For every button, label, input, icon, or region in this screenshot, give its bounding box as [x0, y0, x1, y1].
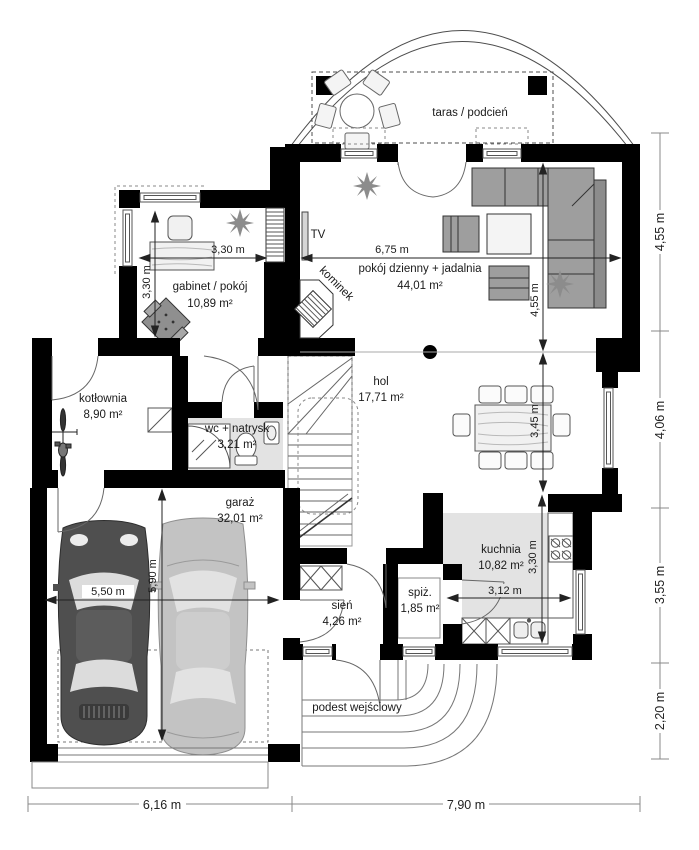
kitchen-counter-right [548, 513, 573, 618]
label-living: pokój dzienny + jadalnia [358, 263, 482, 275]
dim-hol-h: 3,45 m [529, 404, 541, 438]
terrace-chair [345, 133, 369, 149]
hall-storage [300, 566, 440, 638]
label-garaz: garaż [226, 497, 255, 509]
office-chair [168, 216, 192, 240]
tv-set [302, 212, 308, 260]
door-arc [222, 366, 254, 402]
dim-right-2: 3,55 m [653, 566, 667, 604]
label-kotlownia-area: 8,90 m² [84, 409, 123, 421]
window [303, 647, 332, 656]
door-arc [204, 356, 258, 410]
label-taras: taras / podcień [432, 107, 507, 119]
label-gabinet-area: 10,89 m² [187, 298, 233, 310]
dim-living-h: 4,55 m [529, 283, 541, 317]
kitchen-cabinet-x [462, 618, 510, 644]
label-wc-area: 3,21 m² [218, 439, 257, 451]
door-arc [336, 660, 380, 706]
window [341, 149, 377, 158]
label-wc: wc + natrysk [204, 423, 269, 435]
dim-kuchnia-h: 3,30 m [527, 540, 539, 574]
label-hol: hol [373, 376, 388, 388]
terrace-pillar [528, 76, 547, 95]
label-kuchnia: kuchnia [481, 544, 521, 556]
dim-living-w: 6,75 m [375, 244, 409, 256]
label-spiz: spiż. [408, 587, 432, 599]
terrace-table [340, 94, 374, 128]
desk [150, 242, 214, 270]
seat [489, 266, 529, 300]
car-dark [53, 521, 155, 746]
label-sien: sień [331, 600, 352, 612]
plant-icon [353, 172, 381, 200]
window [498, 647, 572, 656]
plant-icon [226, 209, 254, 237]
french-door [398, 162, 466, 197]
label-kuchnia-area: 10,82 m² [478, 560, 524, 572]
label-spiz-area: 1,85 m² [401, 603, 440, 615]
garage-door [58, 748, 268, 755]
bicycle-icon [49, 408, 77, 476]
chimney [266, 208, 284, 262]
plan-canvas: taras / podcień pokój dzienny + jadalnia… [0, 0, 699, 850]
dim-bottom-1: 7,90 m [447, 798, 485, 812]
fireplace [295, 280, 333, 338]
dim-kuchnia-w: 3,12 m [488, 585, 522, 597]
window [140, 193, 200, 202]
plant-icon [546, 270, 574, 298]
window [123, 210, 132, 266]
dim-right-1: 4,06 m [653, 401, 667, 439]
terrace-inner-arch [297, 42, 628, 148]
door-arc [347, 564, 386, 608]
label-tv: TV [311, 229, 326, 241]
coffee-table [487, 214, 531, 254]
dim-right-0: 4,55 m [653, 213, 667, 251]
dim-garaz-w: 5,50 m [91, 586, 125, 598]
car-light [151, 518, 255, 755]
terrace-chair [314, 103, 336, 129]
window [576, 570, 585, 634]
dim-gabinet-h: 3,30 m [141, 265, 153, 299]
label-living-area: 44,01 m² [397, 280, 443, 292]
window [403, 647, 435, 656]
dining-set [453, 386, 570, 469]
terrace [290, 31, 635, 150]
window [483, 149, 521, 158]
label-hol-area: 17,71 m² [358, 392, 404, 404]
label-gabinet: gabinet / pokój [173, 281, 248, 293]
wardrobe [300, 566, 342, 590]
dim-garaz-h: 5,90 m [147, 559, 159, 593]
terrace-chair [362, 69, 390, 96]
armchair [443, 216, 479, 252]
dim-right-3: 2,20 m [653, 692, 667, 730]
window [604, 388, 613, 468]
label-sien-area: 4,26 m² [323, 616, 362, 628]
floor-plan: { "plan": {"type": "house ground floor p… [0, 0, 699, 850]
driveway-apron [32, 762, 268, 788]
label-garaz-area: 32,01 m² [217, 513, 263, 525]
dim-gabinet-w: 3,30 m [211, 244, 245, 256]
stove [549, 536, 573, 562]
terrace-chair [378, 103, 400, 129]
label-podest: podest wejściowy [312, 702, 402, 714]
dim-bottom-0: 6,16 m [143, 798, 181, 812]
label-kotlownia: kotłownia [79, 393, 128, 405]
